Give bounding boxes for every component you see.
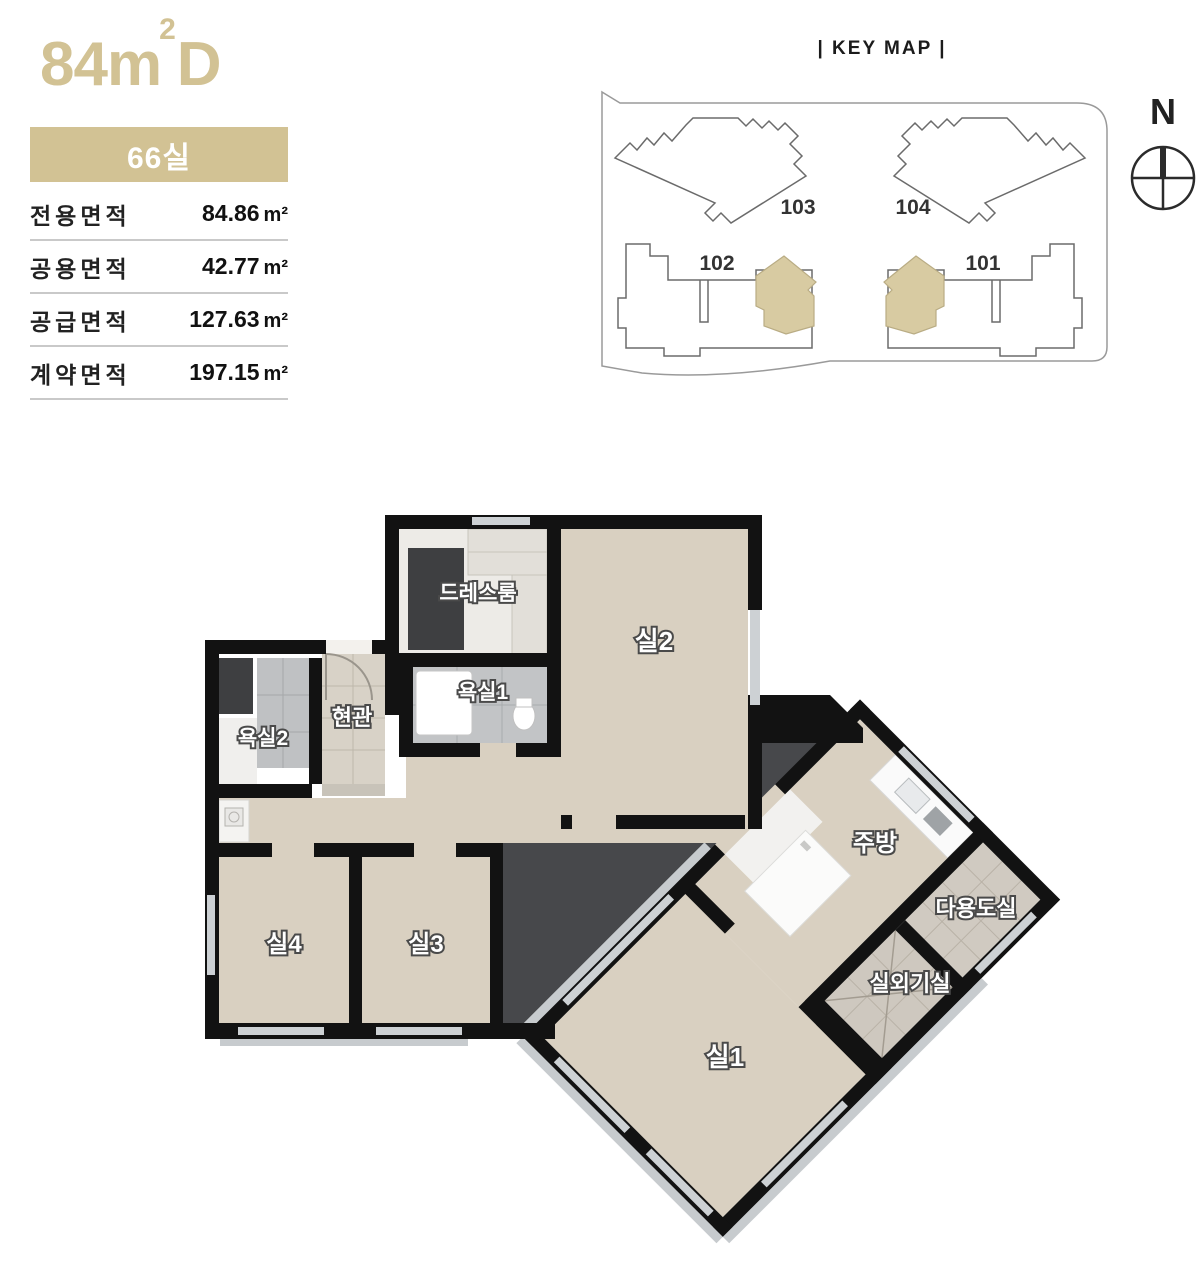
building-number-101: 101 (965, 252, 1000, 275)
area-row-unit: m² (264, 204, 288, 226)
key-map-title: | KEY MAP | (817, 38, 946, 59)
building-103-outline (615, 118, 806, 223)
room-label-bath1: 욕실1 (458, 681, 509, 704)
room-label-room2: 실2 (635, 626, 673, 656)
key-map: | KEY MAP | 103 104 102 101 (580, 30, 1120, 390)
unit-title-suffix: D (177, 30, 221, 99)
area-row-unit: m² (264, 257, 288, 279)
area-row-label: 계약면적 (30, 356, 131, 390)
area-row-value: 42.77 (202, 253, 260, 279)
area-row-value: 84.86 (202, 200, 260, 226)
bath1-room (413, 667, 547, 743)
entry-step (322, 784, 385, 796)
unit-title-main: 84m (40, 30, 161, 99)
washer-nook (219, 800, 249, 842)
building-number-102: 102 (699, 252, 734, 275)
unit-count-badge: 66실 (30, 127, 288, 182)
north-compass-icon: N (1126, 92, 1200, 222)
room-label-utility: 다용도실 (936, 896, 1017, 921)
table-row: 전용면적 84.86m² (30, 188, 288, 241)
unit-count-label: 66실 (127, 133, 191, 177)
table-row: 계약면적 197.15m² (30, 347, 288, 400)
room-label-dressroom: 드레스룸 (439, 582, 516, 605)
area-row-value: 127.63 (189, 306, 259, 332)
room-label-room1: 실1 (706, 1042, 744, 1072)
area-row-value: 197.15 (189, 359, 259, 385)
entry-closet (219, 658, 253, 714)
building-number-104: 104 (895, 196, 930, 219)
unit-type-title: 84m2D (40, 34, 221, 96)
floor-plan-drawing: 드레스룸 실2 욕실1 현관 욕실2 실4 실3 주방 다용도실 실외기실 실1 (180, 500, 1090, 1260)
area-row-label: 전용면적 (30, 197, 131, 231)
room-label-room4: 실4 (266, 931, 302, 958)
unit-title-sup: 2 (159, 13, 175, 46)
table-row: 공용면적 42.77m² (30, 241, 288, 294)
compass-n-label: N (1150, 92, 1176, 132)
area-table: 전용면적 84.86m² 공용면적 42.77m² 공급면적 127.63m² … (30, 188, 288, 400)
floor-plan-sheet: 84m2D 66실 전용면적 84.86m² 공용면적 42.77m² 공급면적… (0, 0, 1200, 1271)
room-label-ac-room: 실외기실 (870, 971, 951, 996)
room-label-entry: 현관 (332, 705, 372, 730)
room-label-bath2: 욕실2 (238, 727, 288, 750)
building-number-103: 103 (780, 196, 815, 219)
room-label-kitchen: 주방 (853, 830, 897, 857)
area-row-unit: m² (264, 363, 288, 385)
room2-floor (561, 529, 748, 829)
area-row-unit: m² (264, 310, 288, 332)
highlighted-unit-102 (756, 256, 816, 334)
area-row-label: 공용면적 (30, 250, 131, 284)
area-row-label: 공급면적 (30, 303, 131, 337)
table-row: 공급면적 127.63m² (30, 294, 288, 347)
highlighted-unit-101 (884, 256, 944, 334)
room-label-room3: 실3 (408, 931, 443, 958)
